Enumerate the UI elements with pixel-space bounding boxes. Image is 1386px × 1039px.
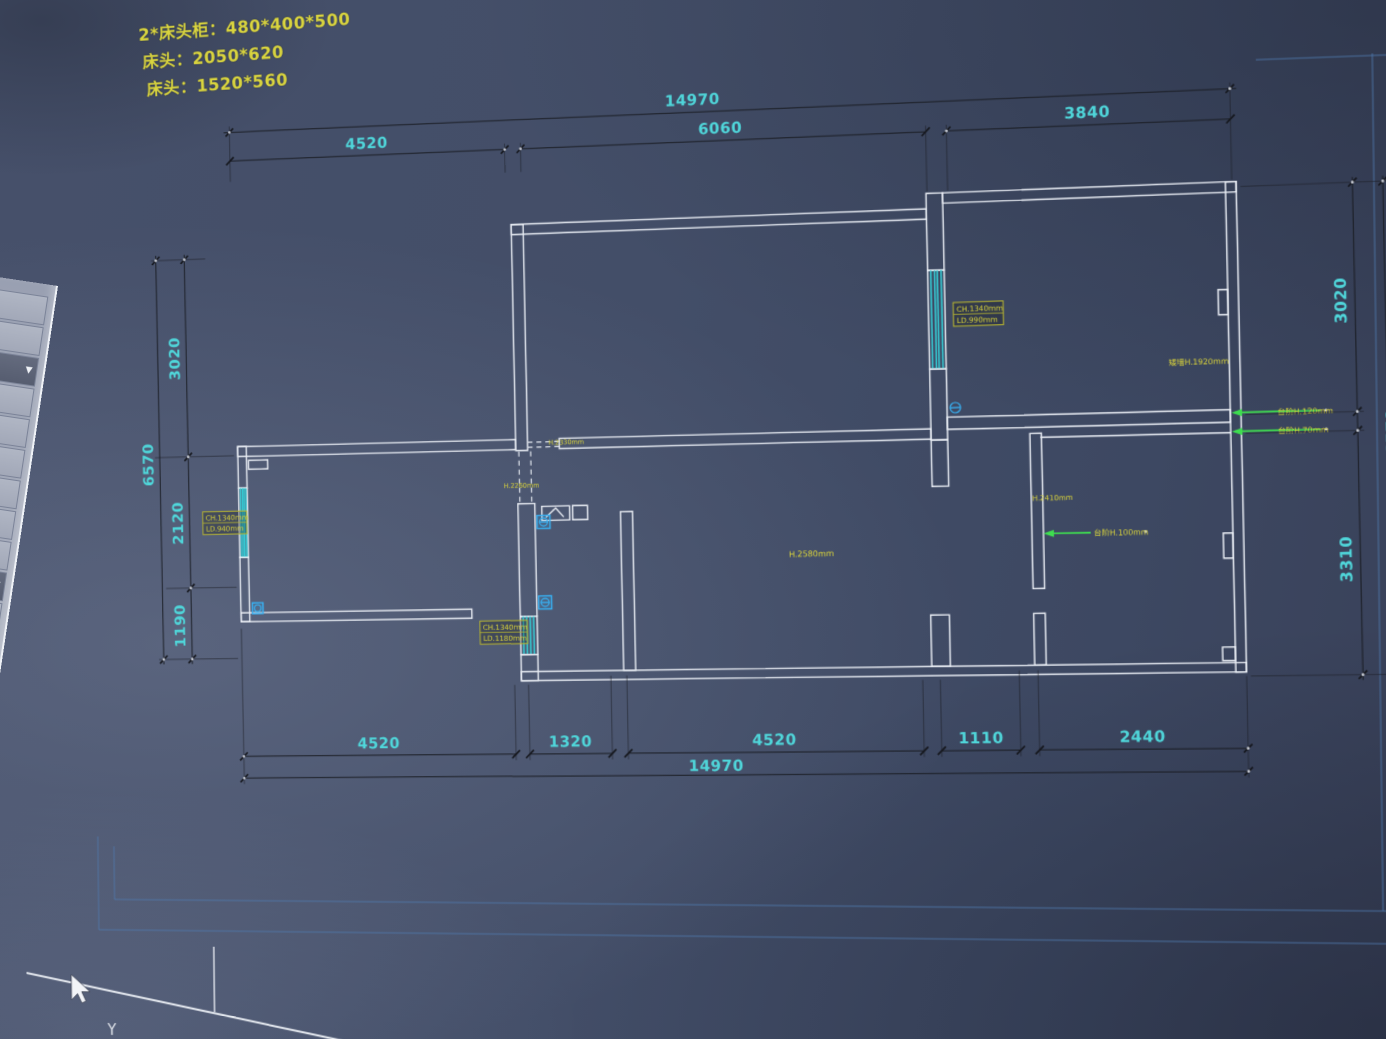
dim-bottom-overall: 14970 (688, 756, 744, 775)
wall-left-wing-bottom (241, 609, 472, 622)
wall-mid-left (238, 440, 516, 457)
dim-left-1190: 1190 (171, 604, 189, 647)
dim-bottom-4520b: 4520 (752, 730, 797, 749)
wall-pier-right (1034, 613, 1047, 665)
wall-top-right-top (943, 181, 1237, 203)
jamb-right-upper (1218, 289, 1228, 314)
wall-division-right (1030, 433, 1045, 588)
toolbar-button[interactable]: ▼ (0, 442, 25, 478)
floor-plan-drawing: Y (15, 0, 1386, 1039)
wall-mid-center (559, 429, 931, 449)
door-jamb-left-top (248, 460, 267, 469)
dim-right-3310: 3310 (1336, 536, 1357, 582)
wall-mid-right-inner-line (1040, 433, 1230, 438)
dim-bottom-4520a: 4520 (357, 734, 400, 752)
window-label-bottom-l2: LD.1180mm (483, 633, 527, 643)
window-label-top-l1: CH.1340mm (956, 303, 1003, 314)
toolbar-button[interactable]: ▼ (0, 412, 30, 448)
window-label-left-l2: LD.940mm (206, 524, 244, 534)
dim-top-4520: 4520 (345, 133, 388, 153)
dim-chain-bottom: 4520 1320 4520 1110 2440 14970 (238, 613, 1254, 784)
cad-application-window: 2*床头柜：480*400*500 床头：2050*620 床头：1520*56… (0, 0, 1386, 1039)
wall-hall-left (518, 503, 537, 616)
window-label-left: CH.1340mm LD.940mm (203, 511, 249, 535)
mouse-cursor-icon (71, 974, 90, 1003)
wall-center-stub (931, 440, 949, 487)
closet-detail-box2 (572, 505, 587, 519)
jamb-right-lower (1223, 533, 1233, 558)
dim-chain-left: 6570 3020 2120 1190 (136, 253, 239, 665)
step-label-100: 台阶H.100mm (1094, 526, 1149, 538)
wall-right-outer (1225, 181, 1246, 672)
window-label-bottom: CH.1340mm LD.1180mm (480, 620, 528, 644)
wall-center-lower (930, 369, 948, 440)
toolbar-button-flyout[interactable]: ▼ (0, 350, 39, 386)
window-label-top: CH.1340mm LD.990mm (953, 301, 1003, 326)
window-label-left-l1: CH.1340mm (206, 513, 249, 523)
dropdown-caret-icon: ▼ (25, 366, 33, 376)
dim-bottom-1320: 1320 (549, 732, 593, 751)
dim-right-overall: 6570 (1382, 408, 1386, 455)
socket-symbol-icon (537, 515, 550, 528)
step-label-120: 台阶H.120mm (1277, 405, 1333, 417)
toolbar-button[interactable]: ▼ (0, 473, 21, 509)
wall-bottom-outer (521, 662, 1246, 680)
window-label-bottom-l1: CH.1340mm (483, 622, 527, 632)
dim-left-overall: 6570 (139, 443, 157, 486)
wall-hall-left-lower (521, 654, 538, 680)
wall-top-room-left (511, 224, 528, 450)
dim-top-6060: 6060 (698, 118, 743, 138)
dim-bottom-2440: 2440 (1119, 727, 1166, 746)
opening-label-2330: H.2330mm (548, 438, 584, 447)
window-center-hatch (931, 270, 943, 369)
dim-left-3020: 3020 (166, 337, 184, 381)
wall-center-upper (926, 193, 944, 271)
dim-top-overall: 14970 (665, 90, 720, 111)
dim-bottom-1110: 1110 (958, 728, 1004, 747)
step-label-70: 台阶H.70mm (1278, 424, 1329, 436)
half-wall-label: 矮墙H.1920mm (1168, 355, 1228, 367)
wall-mid-right (947, 410, 1230, 430)
dropdown-caret-icon: ▼ (0, 581, 1, 591)
dim-left-2120: 2120 (169, 501, 187, 544)
wall-left-outer-upper (238, 447, 247, 489)
dim-right-3020: 3020 (1331, 277, 1352, 324)
socket-symbol-icon (539, 596, 552, 609)
toolbar-button[interactable]: ▼ (0, 381, 35, 417)
model-space-viewport[interactable]: 2*床头柜：480*400*500 床头：2050*620 床头：1520*56… (15, 0, 1386, 1039)
opening-label-2260: H.2260mm (504, 481, 540, 490)
wall-pier-center (931, 615, 951, 667)
opening-label-2410: H.2410mm (1032, 494, 1073, 503)
dim-chain-top: 14970 4520 6060 3840 (223, 66, 1238, 218)
jamb-right-corner (1223, 647, 1236, 661)
dim-top-3840: 3840 (1064, 102, 1110, 123)
window-label-top-l2: LD.990mm (957, 315, 998, 326)
electrical-symbols (249, 402, 965, 613)
ceiling-label-2580: H.2580mm (789, 549, 835, 559)
wall-division-left (620, 511, 635, 670)
toolbar-button[interactable]: ▼ (0, 320, 44, 356)
walls (233, 181, 1247, 684)
socket-symbol-icon (252, 603, 263, 614)
plan-group: CH.1340mm LD.940mm CH.1340mm LD.990mm CH… (133, 59, 1386, 785)
ucs-y-axis-label: Y (107, 1021, 118, 1039)
socket-symbol-icon (950, 402, 961, 413)
wall-top-room-top (511, 209, 926, 235)
toolbar-button[interactable]: ▼ (0, 289, 48, 325)
